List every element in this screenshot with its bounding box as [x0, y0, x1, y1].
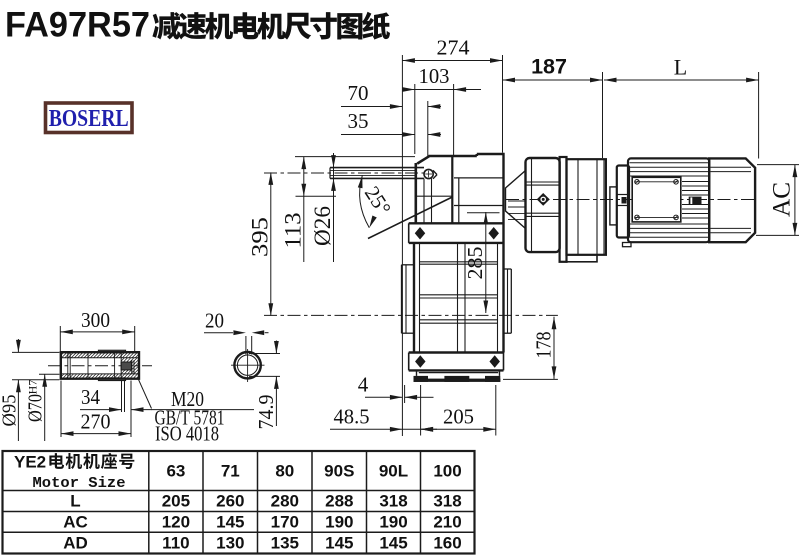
svg-text:187: 187: [531, 55, 567, 79]
svg-text:34: 34: [81, 385, 100, 409]
svg-text:74.9: 74.9: [254, 395, 278, 430]
svg-text:130: 130: [216, 534, 244, 553]
svg-text:Ø70: Ø70: [25, 394, 47, 422]
svg-text:103: 103: [419, 64, 450, 88]
svg-text:300: 300: [81, 308, 110, 332]
svg-text:318: 318: [379, 492, 407, 511]
svg-text:205: 205: [162, 492, 190, 511]
svg-text:260: 260: [216, 492, 244, 511]
svg-text:205: 205: [443, 405, 474, 429]
svg-text:120: 120: [162, 513, 190, 532]
svg-text:100: 100: [433, 462, 461, 481]
svg-text:L: L: [70, 492, 80, 511]
svg-text:190: 190: [325, 513, 353, 532]
svg-text:4: 4: [358, 373, 369, 397]
svg-text:90L: 90L: [379, 462, 408, 481]
svg-text:288: 288: [325, 492, 353, 511]
svg-text:FA97R57: FA97R57: [5, 6, 150, 45]
svg-text:210: 210: [433, 513, 461, 532]
svg-text:113: 113: [281, 213, 306, 249]
svg-text:35: 35: [348, 109, 369, 133]
svg-text:274: 274: [437, 36, 471, 60]
svg-text:190: 190: [379, 513, 407, 532]
svg-text:Ø95: Ø95: [0, 395, 21, 427]
svg-text:145: 145: [325, 534, 353, 553]
svg-text:160: 160: [433, 534, 461, 553]
svg-text:395: 395: [248, 217, 273, 257]
svg-text:145: 145: [379, 534, 407, 553]
svg-text:Motor Size: Motor Size: [33, 475, 126, 492]
svg-text:70: 70: [348, 81, 369, 105]
svg-text:178: 178: [532, 332, 556, 359]
svg-text:280: 280: [271, 492, 299, 511]
svg-text:AC: AC: [63, 513, 88, 532]
svg-text:285: 285: [463, 247, 487, 280]
svg-text:BOSERL: BOSERL: [49, 105, 129, 132]
svg-text:63: 63: [166, 462, 185, 481]
svg-text:145: 145: [216, 513, 244, 532]
svg-text:AD: AD: [63, 534, 88, 553]
svg-text:110: 110: [162, 534, 189, 553]
svg-text:ISO 4018: ISO 4018: [155, 422, 219, 446]
svg-text:80: 80: [275, 462, 294, 481]
svg-text:170: 170: [271, 513, 299, 532]
svg-text:20: 20: [205, 309, 224, 333]
svg-text:270: 270: [81, 410, 111, 434]
svg-text:48.5: 48.5: [334, 405, 370, 429]
svg-text:YE2: YE2: [14, 453, 46, 472]
svg-text:Ø26: Ø26: [310, 206, 335, 246]
svg-text:71: 71: [221, 462, 240, 481]
svg-text:318: 318: [433, 492, 461, 511]
svg-text:135: 135: [271, 534, 299, 553]
svg-text:AC: AC: [769, 182, 796, 217]
svg-text:L: L: [674, 55, 687, 80]
svg-text:H7: H7: [26, 380, 40, 395]
svg-text:90S: 90S: [324, 462, 354, 481]
